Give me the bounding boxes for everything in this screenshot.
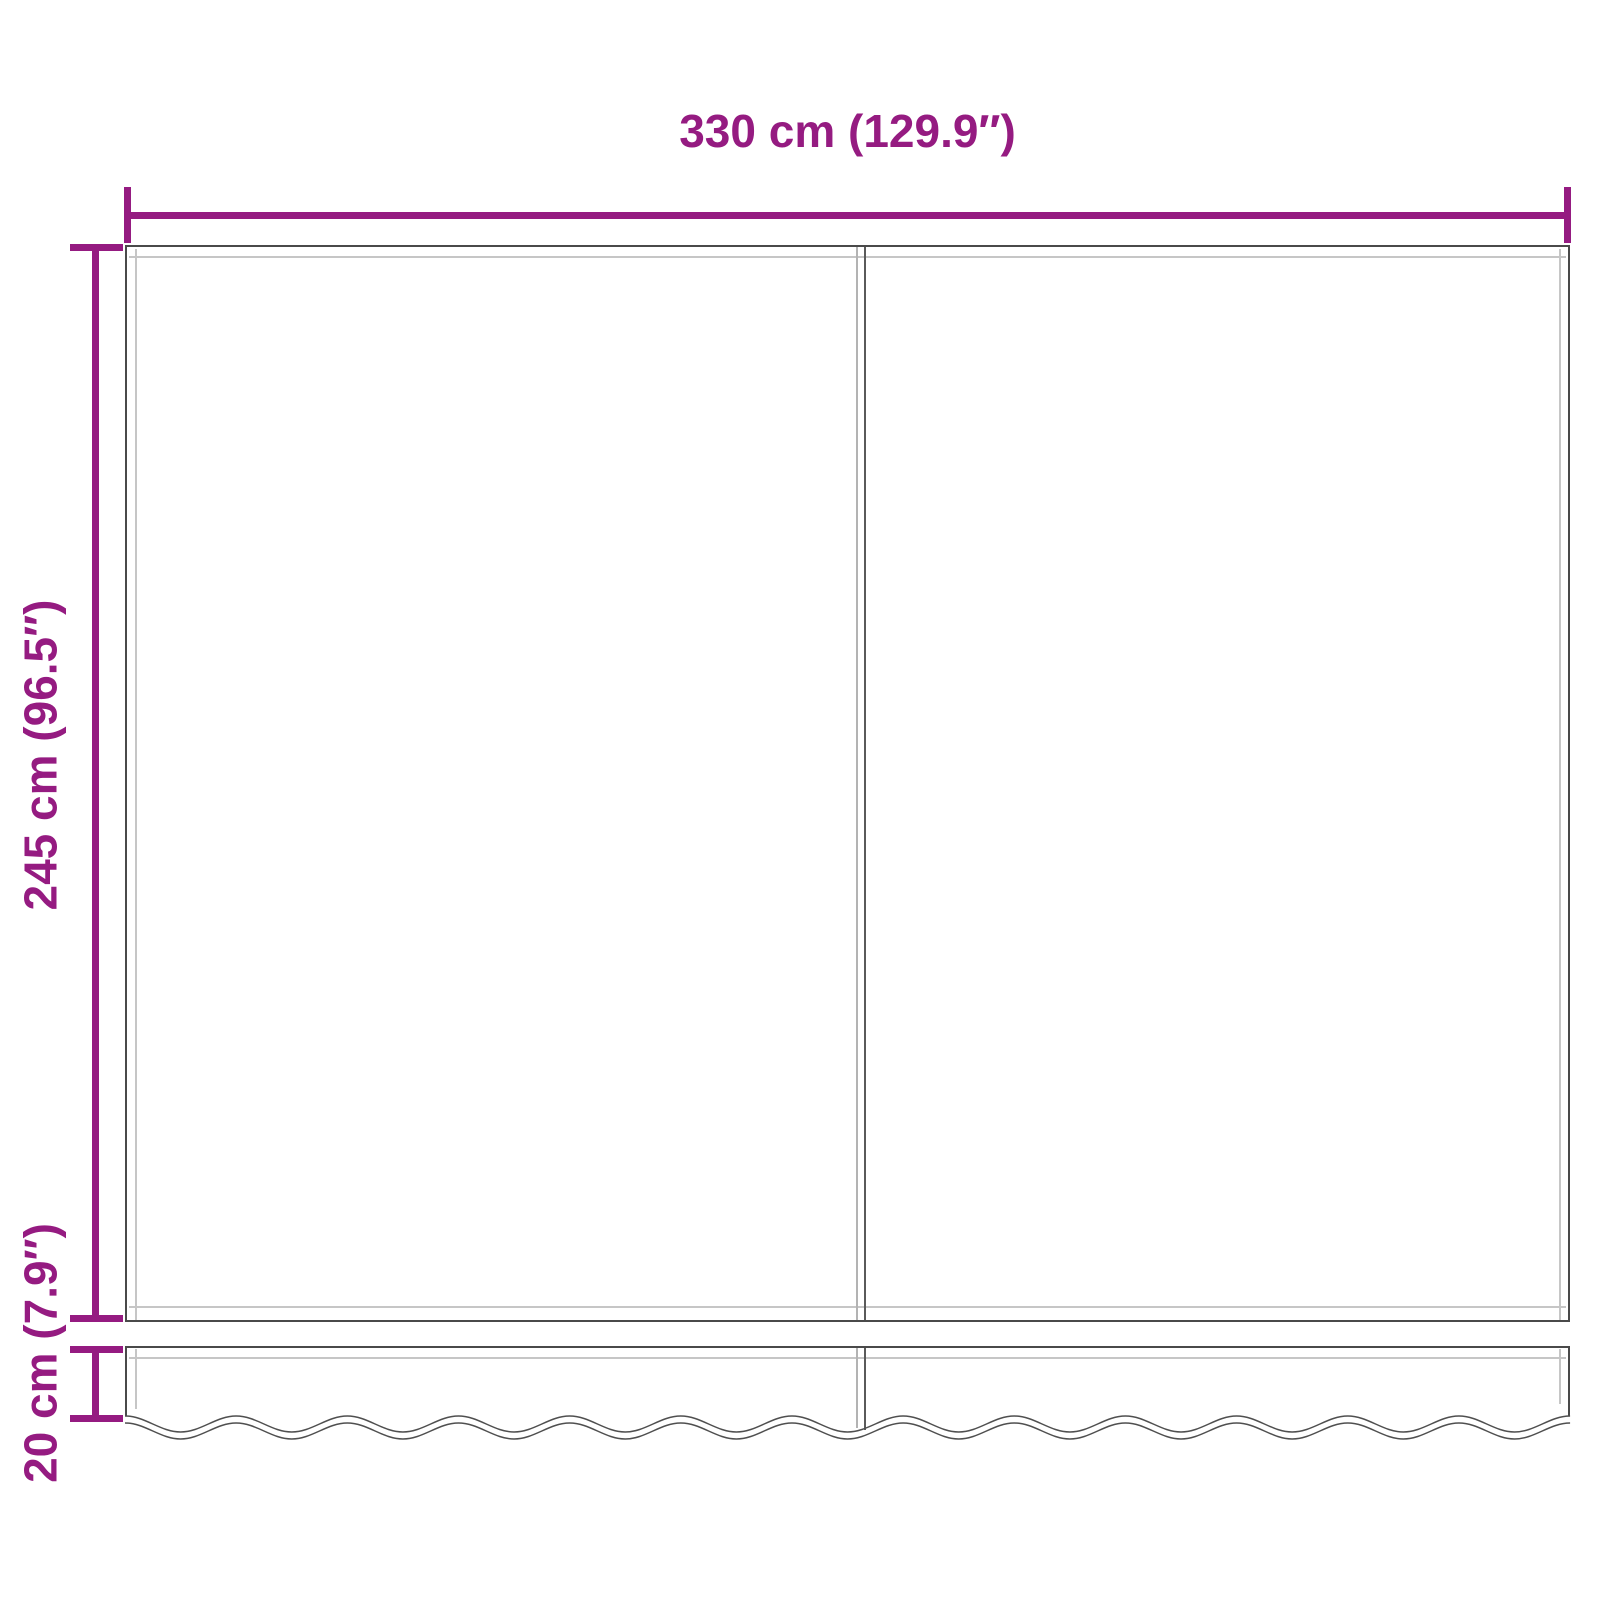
fabric-hem-line-bottom — [129, 1306, 1566, 1308]
valance-scalloped-edge — [125, 1405, 1570, 1451]
fabric-panel — [125, 245, 1570, 1322]
valance-dimension-tick-top — [70, 1346, 123, 1353]
valance-dimension-label: 20 cm (7.9″) — [14, 1223, 69, 1483]
width-dimension-line — [127, 212, 1568, 219]
height-dimension-line — [92, 247, 99, 1320]
height-dimension-tick-top — [70, 244, 123, 251]
scallop-wave-inner-line — [125, 1423, 1570, 1439]
width-dimension-label: 330 cm (129.9″) — [127, 104, 1568, 159]
product-dimension-diagram: 330 cm (129.9″) 245 cm (96.5″) 20 cm (7.… — [0, 0, 1600, 1600]
fabric-center-seam-light-line — [856, 247, 858, 1320]
valance-hem-line-right — [1559, 1349, 1561, 1404]
fabric-center-seam-dark-line — [864, 247, 866, 1320]
fabric-hem-line-top — [129, 256, 1566, 258]
valance-hem-line-top — [129, 1357, 1566, 1359]
height-dimension-label: 245 cm (96.5″) — [14, 600, 69, 911]
width-dimension-tick-right — [1564, 187, 1571, 243]
valance-hem-line-left — [135, 1349, 137, 1409]
fabric-hem-line-right — [1559, 249, 1561, 1320]
height-dimension-tick-bottom — [70, 1315, 123, 1322]
valance-dimension-tick-bottom — [70, 1415, 123, 1422]
fabric-hem-line-left — [135, 249, 137, 1320]
valance-dimension-line — [92, 1349, 99, 1419]
width-dimension-tick-left — [124, 187, 131, 243]
